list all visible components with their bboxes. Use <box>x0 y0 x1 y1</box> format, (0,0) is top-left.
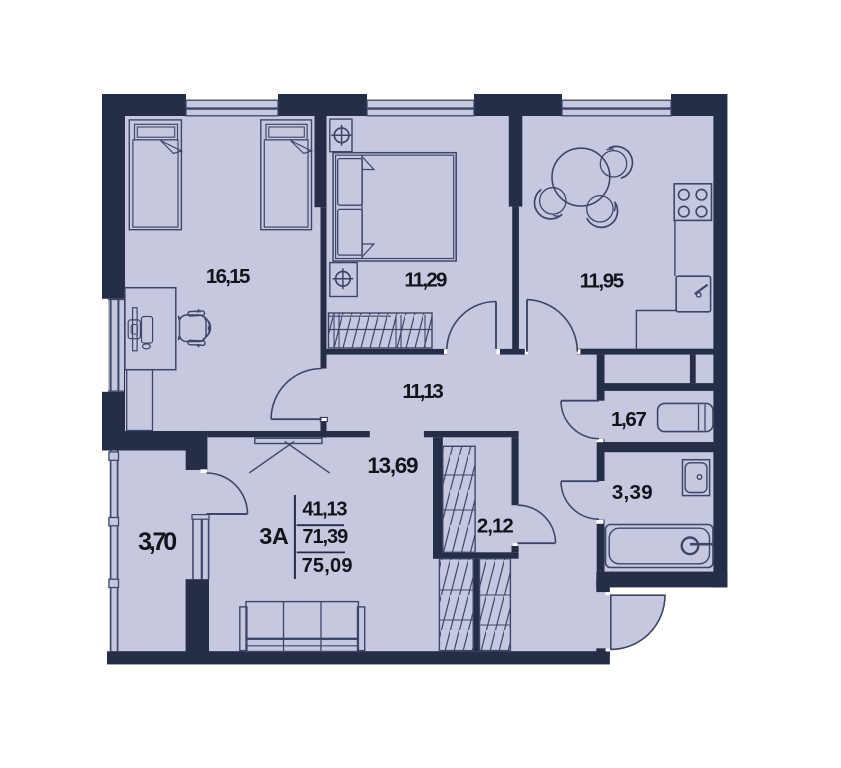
svg-text:3,70: 3,70 <box>138 528 176 556</box>
svg-text:13,69: 13,69 <box>367 453 418 478</box>
svg-text:2,12: 2,12 <box>477 514 513 537</box>
svg-text:3А: 3А <box>259 523 289 549</box>
svg-text:11,29: 11,29 <box>404 268 447 291</box>
svg-text:11,95: 11,95 <box>580 269 624 292</box>
svg-text:11,13: 11,13 <box>402 380 443 403</box>
svg-text:16,15: 16,15 <box>206 265 250 288</box>
svg-text:75,09: 75,09 <box>302 555 353 577</box>
svg-text:41,13: 41,13 <box>302 498 347 520</box>
svg-text:1,67: 1,67 <box>611 408 647 431</box>
svg-text:71,39: 71,39 <box>302 526 348 548</box>
svg-text:3,39: 3,39 <box>612 481 653 504</box>
